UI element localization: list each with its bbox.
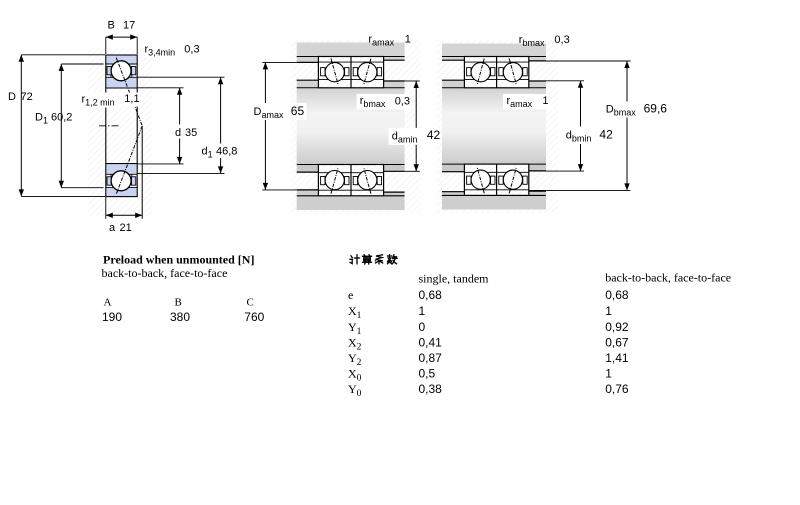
svg-text:65: 65 [291, 104, 305, 118]
svg-text:d: d [175, 127, 181, 139]
svg-text:B: B [108, 19, 115, 31]
svg-text:D: D [8, 91, 16, 103]
svg-text:69,6: 69,6 [644, 101, 668, 115]
svg-text:0,5: 0,5 [419, 367, 436, 381]
svg-text:72: 72 [21, 91, 33, 103]
svg-text:C: C [247, 297, 254, 309]
svg-text:1,41: 1,41 [605, 351, 629, 365]
svg-text:35: 35 [185, 127, 197, 139]
svg-text:0,3: 0,3 [184, 44, 199, 56]
svg-text:B: B [175, 297, 182, 309]
svg-text:0,92: 0,92 [605, 320, 629, 334]
svg-text:0,68: 0,68 [419, 288, 443, 302]
svg-text:Preload when unmounted [N]: Preload when unmounted [N] [103, 253, 254, 267]
svg-text:17: 17 [123, 19, 135, 31]
svg-text:1: 1 [542, 95, 548, 107]
svg-text:1: 1 [605, 367, 612, 381]
svg-text:0,67: 0,67 [605, 335, 629, 349]
svg-text:A: A [104, 297, 112, 309]
svg-text:0,3: 0,3 [554, 34, 569, 46]
svg-text:e: e [348, 288, 353, 302]
svg-text:1,1: 1,1 [124, 93, 139, 105]
svg-text:back-to-back, face-to-face: back-to-back, face-to-face [102, 266, 228, 280]
svg-text:0,87: 0,87 [419, 351, 443, 365]
svg-text:380: 380 [170, 310, 190, 324]
svg-text:back-to-back, face-to-face: back-to-back, face-to-face [605, 271, 731, 285]
svg-text:42: 42 [599, 127, 613, 141]
svg-text:0,41: 0,41 [419, 335, 443, 349]
svg-text:0: 0 [419, 320, 426, 334]
svg-text:single, tandem: single, tandem [419, 272, 490, 286]
svg-text:190: 190 [102, 310, 122, 324]
svg-text:46,8: 46,8 [216, 146, 237, 158]
svg-text:0,68: 0,68 [605, 288, 629, 302]
svg-text:1: 1 [419, 304, 426, 318]
svg-text:1: 1 [605, 304, 612, 318]
svg-text:0,76: 0,76 [605, 382, 629, 396]
svg-text:0,38: 0,38 [419, 382, 443, 396]
svg-text:0,3: 0,3 [395, 95, 410, 107]
svg-text:42: 42 [427, 128, 441, 142]
svg-text:60,2: 60,2 [51, 112, 72, 124]
svg-text:1: 1 [405, 34, 411, 46]
svg-text:a: a [109, 222, 116, 234]
svg-text:760: 760 [244, 310, 264, 324]
svg-text:21: 21 [120, 222, 132, 234]
